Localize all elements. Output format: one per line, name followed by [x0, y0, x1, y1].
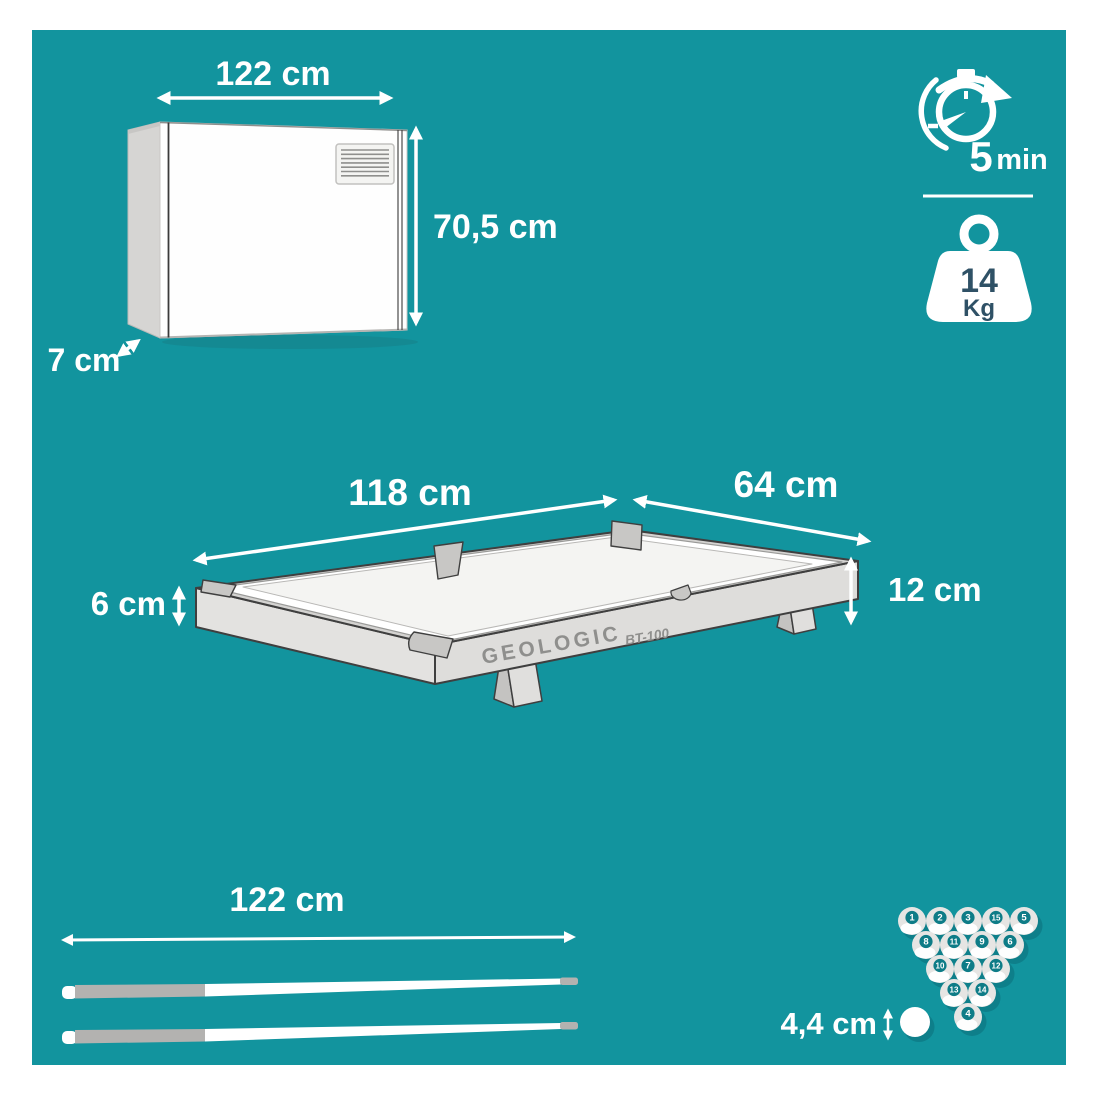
svg-text:10: 10: [936, 962, 945, 971]
cue-butt-cap: [62, 986, 77, 999]
box-depth-label: 7 cm: [48, 342, 121, 378]
svg-text:11: 11: [950, 938, 959, 947]
cue-ball: [900, 1007, 930, 1037]
svg-text:7: 7: [965, 961, 970, 972]
pocket-corner-top-right: [611, 521, 642, 550]
table-width-label: 64 cm: [734, 464, 839, 505]
cue-tip: [560, 978, 578, 986]
svg-text:5: 5: [1021, 913, 1027, 924]
infographic-canvas: 122 cm 70,5 cm 7 cm 5 min 14 Kg: [0, 0, 1100, 1100]
box-vent-grille: [336, 144, 394, 184]
cue-length-label: 122 cm: [229, 881, 344, 919]
box-width-label: 122 cm: [215, 55, 330, 93]
assembly-time-unit: min: [996, 144, 1048, 176]
svg-text:8: 8: [923, 937, 928, 948]
svg-text:4: 4: [965, 1009, 971, 1020]
packaging-box-illustration: [128, 122, 418, 349]
product-infographic: 122 cm 70,5 cm 7 cm 5 min 14 Kg: [0, 0, 1100, 1100]
pocket-middle-top: [434, 542, 463, 579]
box-side-face: [128, 122, 160, 338]
cue-ball-block: 4,4 cm: [780, 1006, 934, 1042]
svg-text:12: 12: [992, 962, 1001, 971]
svg-text:15: 15: [992, 914, 1001, 923]
assembly-time-value: 5: [969, 133, 992, 180]
table-total-height-label: 12 cm: [888, 571, 982, 608]
svg-text:13: 13: [950, 986, 959, 995]
svg-text:2: 2: [937, 913, 942, 924]
svg-text:3: 3: [965, 913, 970, 924]
ball-diameter-label: 4,4 cm: [780, 1006, 877, 1041]
cue-butt: [75, 1029, 205, 1044]
svg-text:1: 1: [909, 913, 915, 924]
svg-text:14: 14: [978, 986, 987, 995]
weight-unit: Kg: [963, 295, 995, 322]
table-length-label: 118 cm: [348, 472, 471, 513]
table-frame-height-label: 6 cm: [91, 585, 166, 622]
cue-tip: [560, 1022, 578, 1030]
box-height-label: 70,5 cm: [433, 208, 558, 246]
svg-text:6: 6: [1007, 937, 1012, 948]
cue-butt: [75, 984, 205, 999]
cue-butt-cap: [62, 1031, 77, 1044]
svg-text:9: 9: [979, 937, 984, 948]
